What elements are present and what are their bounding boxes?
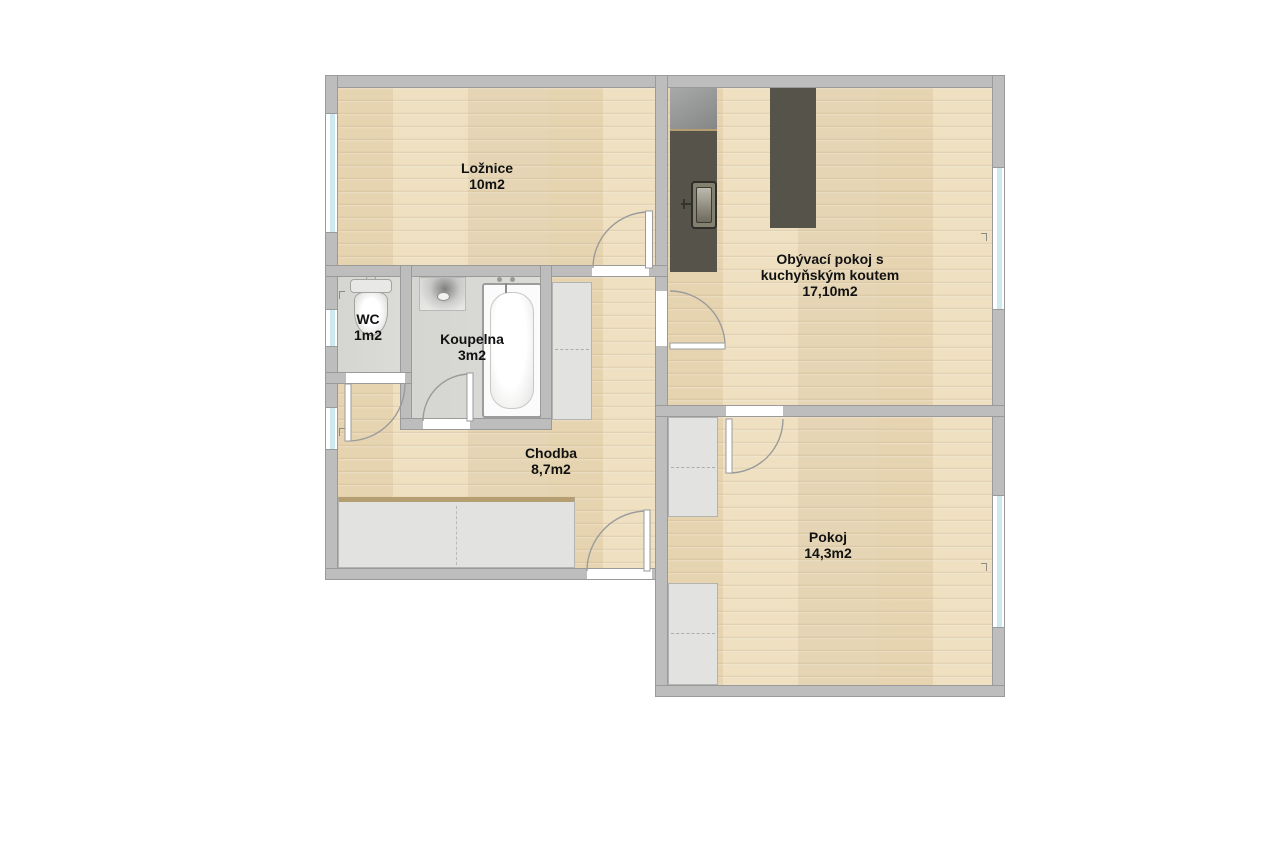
door-arc-koupelna	[423, 374, 470, 421]
room-label-obyvaci: Obývací pokoj s kuchyňským koutem 17,10m…	[761, 251, 900, 299]
door-leaf-loznice	[646, 211, 653, 268]
room-area: 14,3m2	[804, 545, 851, 561]
room-area: 8,7m2	[525, 461, 577, 477]
room-area: 3m2	[440, 347, 504, 363]
door-arc-obyvaci	[670, 291, 725, 346]
door-leaf-wc	[345, 384, 351, 441]
door-arc-wc	[348, 384, 405, 441]
door-leaf-pokoj	[726, 419, 732, 473]
room-label-chodba: Chodba 8,7m2	[525, 445, 577, 477]
room-name: Koupelna	[440, 331, 504, 347]
door-leaf-obyvaci	[670, 343, 725, 349]
door-leaf-entrance	[644, 510, 650, 571]
door-arc-entrance	[587, 511, 647, 571]
room-name: kuchyňským koutem	[761, 267, 900, 283]
room-name: Ložnice	[461, 160, 513, 176]
door-arc-pokoj	[729, 419, 783, 473]
room-label-koupelna: Koupelna 3m2	[440, 331, 504, 363]
room-label-wc: WC 1m2	[354, 311, 382, 343]
room-name: Pokoj	[804, 529, 851, 545]
room-area: 1m2	[354, 327, 382, 343]
door-leaf-koupelna	[467, 373, 473, 421]
room-area: 10m2	[461, 176, 513, 192]
room-label-pokoj: Pokoj 14,3m2	[804, 529, 851, 561]
room-name: Chodba	[525, 445, 577, 461]
room-name: WC	[354, 311, 382, 327]
doors-layer	[0, 0, 1280, 852]
room-label-loznice: Ložnice 10m2	[461, 160, 513, 192]
room-name: Obývací pokoj s	[761, 251, 900, 267]
room-area: 17,10m2	[761, 283, 900, 299]
floor-plan-canvas: Ložnice 10m2 Obývací pokoj s kuchyňským …	[0, 0, 1280, 852]
door-arc-loznice	[593, 212, 649, 268]
